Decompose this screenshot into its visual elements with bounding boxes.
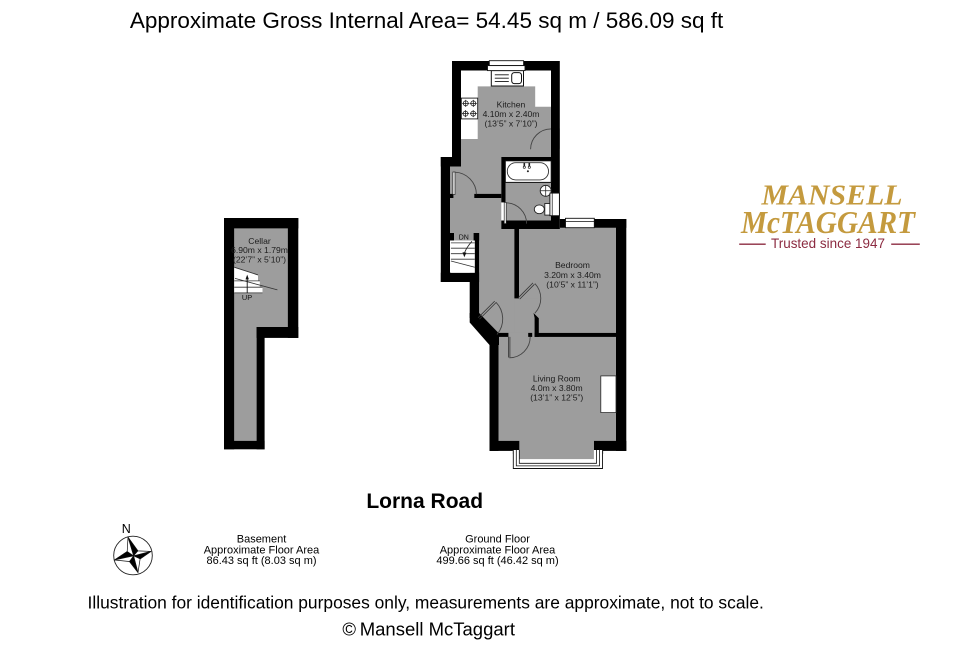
svg-text:(13’1” x 12’5”): (13’1” x 12’5”) — [530, 393, 583, 403]
svg-text:Trusted since 1947: Trusted since 1947 — [771, 235, 885, 251]
svg-text:(13’5” x 7’10”): (13’5” x 7’10”) — [484, 119, 537, 129]
svg-text:4.10m x 2.40m: 4.10m x 2.40m — [483, 109, 540, 119]
svg-text:Lorna Road: Lorna Road — [366, 490, 483, 513]
svg-text:Approximate Gross Internal Are: Approximate Gross Internal Area= 54.45 s… — [130, 8, 724, 33]
svg-text:Kitchen: Kitchen — [497, 99, 526, 109]
svg-text:UP: UP — [242, 293, 252, 302]
svg-text:4.0m x 3.80m: 4.0m x 3.80m — [531, 383, 583, 393]
svg-text:N: N — [122, 522, 131, 536]
svg-text:(22’7” x 5’10”): (22’7” x 5’10”) — [233, 254, 286, 264]
svg-text:499.66 sq ft (46.42 sq m): 499.66 sq ft (46.42 sq m) — [436, 555, 558, 567]
svg-text:(10’5” x 11’1”): (10’5” x 11’1”) — [546, 280, 599, 290]
svg-text:Bedroom: Bedroom — [555, 260, 590, 270]
svg-text:Illustration for identificatio: Illustration for identification purposes… — [88, 592, 764, 612]
svg-text:DN: DN — [459, 235, 469, 242]
svg-text:86.43 sq ft (8.03 sq m): 86.43 sq ft (8.03 sq m) — [206, 555, 316, 567]
svg-text:Living Room: Living Room — [533, 373, 581, 383]
svg-text:© Mansell McTaggart: © Mansell McTaggart — [342, 619, 515, 640]
svg-text:3.20m x 3.40m: 3.20m x 3.40m — [544, 270, 601, 280]
